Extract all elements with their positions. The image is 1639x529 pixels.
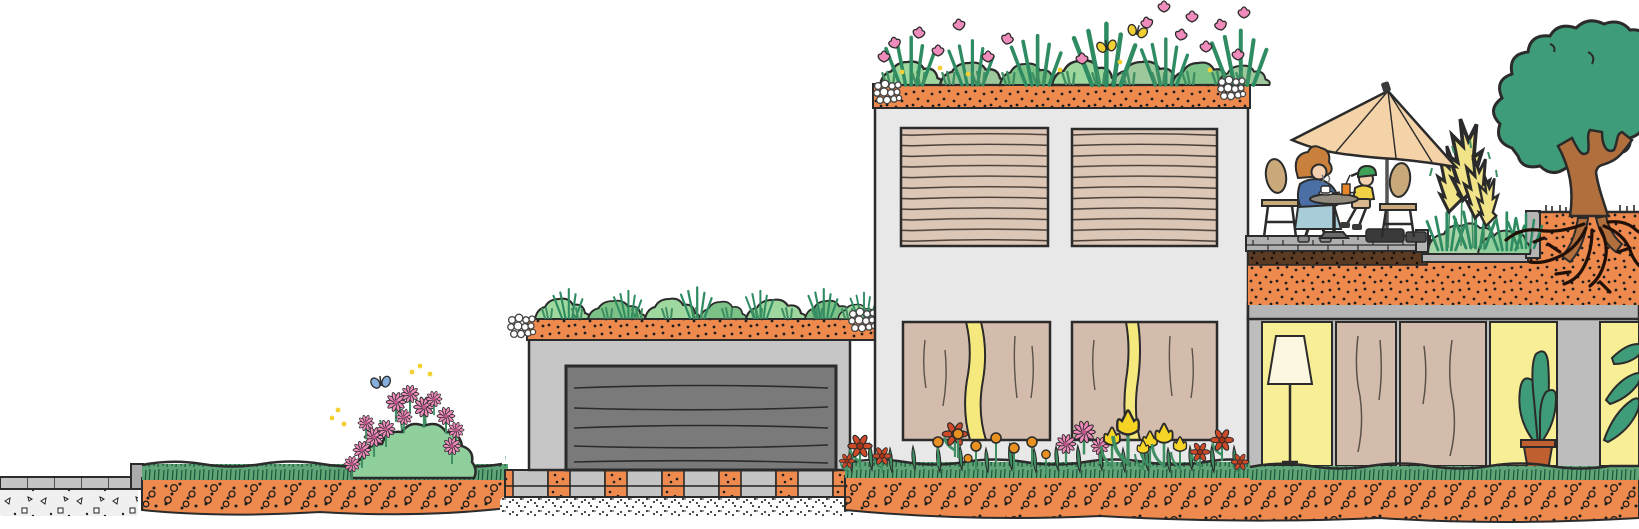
parasol-base [1366,229,1404,242]
roof-substrate [873,84,1250,108]
terrace-slab [1248,303,1639,319]
bag-on-deck [1406,232,1426,242]
light-between-curtains [965,322,986,440]
curtain-panel-2 [1400,322,1486,466]
woman-shoe [1298,236,1309,242]
roof-gravel-edge-right [1218,76,1246,99]
room-with-potted-plant [1490,322,1557,470]
concrete-layer [0,489,138,516]
lamp-shade [1268,336,1312,384]
juice-glass [1342,184,1350,195]
flower-bed-soil [845,476,1639,522]
tree-trunk [1558,130,1632,216]
roof-gravel-edge-left [874,80,902,103]
chair-left [1262,158,1298,237]
garage-roller-door [566,366,836,470]
soil-layer [142,478,508,515]
cap-brim [1351,173,1358,176]
table-foot [1320,232,1348,238]
paver-row [0,477,138,489]
garage-with-green-roof [508,287,877,470]
roof-plants [535,287,877,319]
paver-soil-cells [505,470,848,497]
lower-window-right [1072,322,1217,440]
roof-garden [873,1,1270,108]
sidewalk-pavement [0,464,143,516]
pot-rim [1521,440,1555,447]
woman-head [1312,165,1327,180]
child-cap [1358,166,1376,177]
straw [1346,175,1350,184]
planter-edging [1422,254,1528,262]
roof-gravel-edge-left [508,314,536,337]
coffee-cup [1321,186,1330,193]
terrace-scene [1262,146,1416,242]
drainage-layer [1248,250,1428,265]
roof-gravel-edge-right [849,308,877,331]
lower-window-left [903,322,1050,440]
illustration-canvas [0,0,1639,529]
blue-butterfly [368,374,393,391]
upper-window-left [901,128,1048,246]
house-with-roof-garden [873,1,1270,470]
child-shoe [1352,224,1362,230]
upper-window-right [1072,129,1217,246]
curtain-panel-1 [1336,322,1396,466]
terrace-soil [1248,264,1428,305]
table-top [1310,194,1358,204]
flowering-shrub [330,364,476,481]
gravel-layer [500,497,854,517]
green-roofs-illustration [0,0,1639,529]
room-right-sliver [1600,322,1639,466]
garage-green-roof [508,287,877,340]
roof-substrate [527,318,877,340]
child-shoe [1340,222,1350,228]
room-with-floor-lamp [1262,322,1332,466]
